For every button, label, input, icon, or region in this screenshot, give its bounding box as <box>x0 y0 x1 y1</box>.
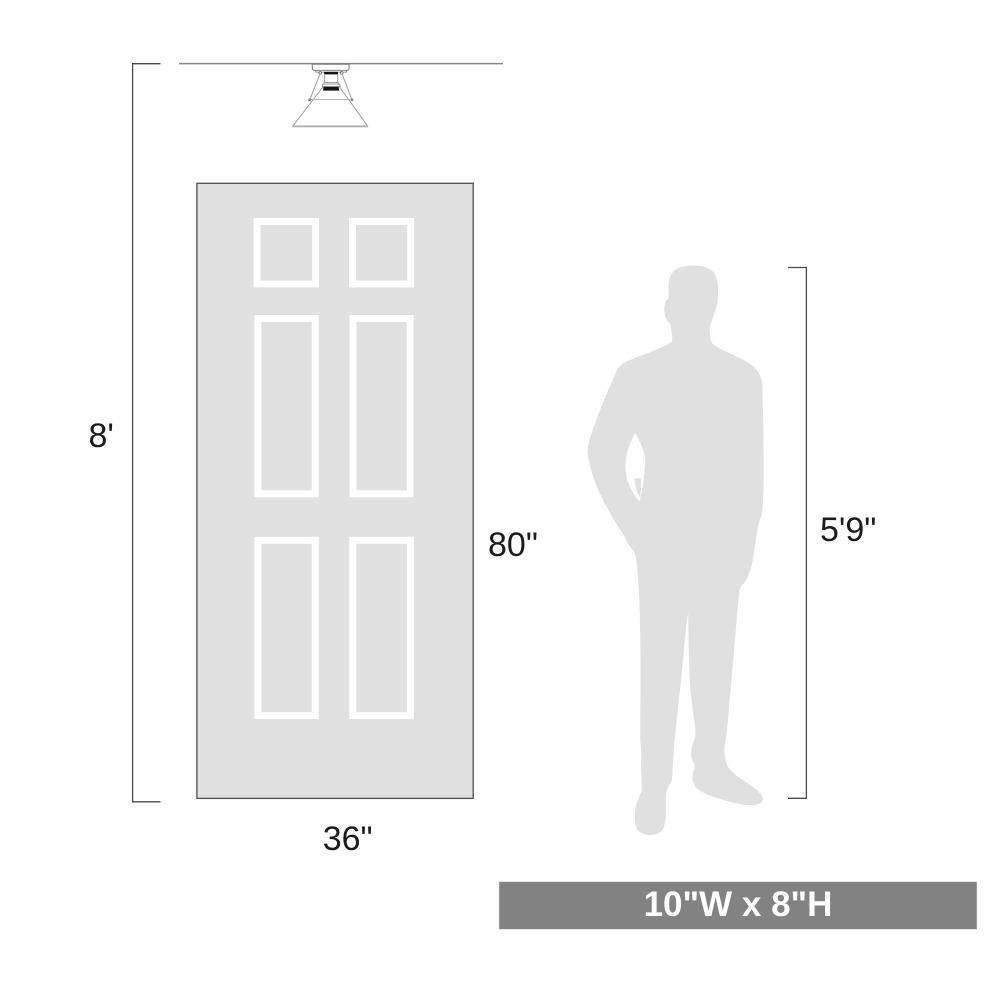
svg-text:36": 36" <box>323 820 373 858</box>
svg-text:5'9": 5'9" <box>820 511 876 549</box>
svg-text:80": 80" <box>488 526 538 564</box>
svg-text:10"W x 8"H: 10"W x 8"H <box>644 885 833 924</box>
svg-text:8': 8' <box>89 417 114 455</box>
